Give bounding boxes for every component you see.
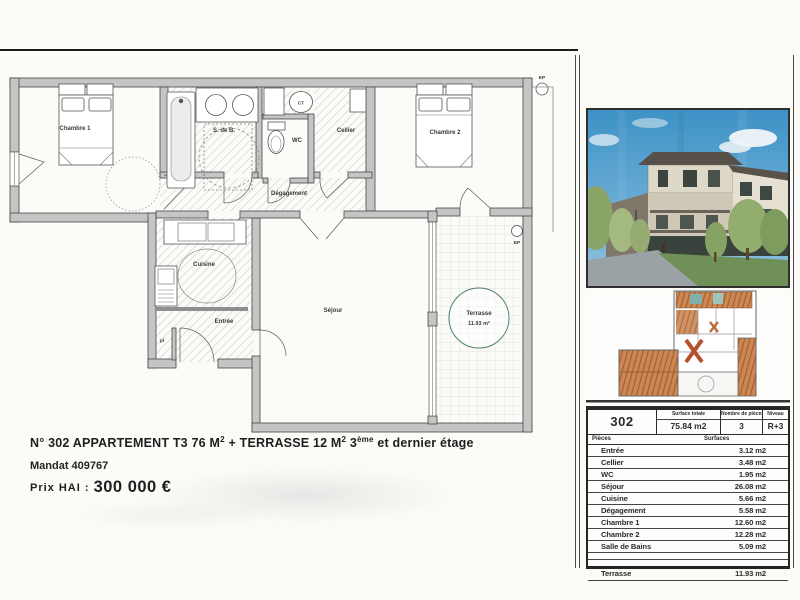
surface-totale-value: 75.84 m2: [657, 420, 720, 433]
room-label-sdb: S. de B.: [213, 128, 235, 134]
niveau-label: Niveau: [763, 410, 788, 420]
toilet: [268, 131, 284, 154]
room-label-wc: WC: [292, 138, 303, 144]
building-render-art: [588, 110, 788, 286]
appliance: [155, 266, 177, 306]
surface-totale-label: Surface totale: [657, 410, 720, 420]
toilet-tank: [268, 122, 285, 130]
ep-label: EP: [539, 75, 546, 81]
price-label: Prix HAI :: [30, 482, 90, 494]
surface-table: 302 Surface totale 75.84 m2 Nombre de pi…: [586, 408, 790, 569]
table-row-entree: Entrée3.12 m2: [588, 445, 788, 457]
room-label-chambre-2: Chambre 2: [429, 130, 461, 136]
thumbnail-bottom-rule: [586, 400, 790, 403]
table-row-sejour: Séjour26.08 m2: [588, 481, 788, 493]
label-placard: pl: [160, 338, 164, 344]
table-row-degagement: Dégagement5.58 m2: [588, 505, 788, 517]
table-row-salle-de-bains: Salle de Bains5.09 m2: [588, 541, 788, 553]
sink: [233, 95, 254, 116]
room-label-entree: Entrée: [215, 319, 234, 325]
table-row-empty: [588, 553, 788, 560]
floor-plan: Chambre 1 S. de B. WC CT Cellier Chambre…: [0, 55, 556, 445]
ep-drain: [512, 226, 523, 237]
scanned-listing-page: { "plan": { "rooms": { "chambre1": "Cham…: [0, 0, 800, 600]
sink: [206, 95, 227, 116]
center-terrace: [678, 372, 738, 396]
building-render-photo: [586, 108, 790, 288]
col-surfaces: Surfaces: [704, 435, 729, 444]
table-row-cellier: Cellier3.48 m2: [588, 457, 788, 469]
panel-divider-line: [575, 55, 576, 568]
table-row-chambre-2: Chambre 212.28 m2: [588, 529, 788, 541]
floor-thumbnail-art: [586, 290, 790, 405]
panel-divider-line: [579, 55, 580, 568]
label-ct: CT: [298, 101, 304, 107]
left-deck: [619, 350, 678, 396]
table-row-terrasse: Terrasse11.93 m2: [588, 566, 788, 581]
room-label-cellier: Cellier: [337, 128, 356, 134]
unit-number: 302: [588, 410, 656, 434]
table-row-cuisine: Cuisine5.66 m2: [588, 493, 788, 505]
table-row-wc: WC1.95 m2: [588, 469, 788, 481]
table-row-chambre-1: Chambre 112.60 m2: [588, 517, 788, 529]
room-label-sejour: Séjour: [324, 308, 343, 314]
pieces-value: 3: [721, 420, 762, 433]
page-right-edge-line: [793, 55, 794, 568]
turning-circle: [106, 157, 160, 211]
listing-title: N° 302 APPARTEMENT T3 76 M2 + TERRASSE 1…: [30, 435, 474, 450]
cloud: [589, 134, 619, 146]
roof-edge-line: [532, 87, 553, 232]
col-pieces: Pièces: [592, 435, 611, 444]
room-label-cuisine: Cuisine: [193, 262, 215, 268]
ep-label: EP: [514, 240, 521, 246]
mandat-number: Mandat 409767: [30, 460, 108, 472]
right-deck: [738, 338, 756, 396]
scan-smudge: [70, 500, 270, 530]
kitchen-counter: [164, 220, 246, 244]
pieces-label: Nombre de pièces: [721, 410, 762, 420]
duct: [264, 88, 284, 115]
cellier-shelf: [350, 89, 366, 112]
room-label-degagement: Dégagement: [271, 191, 307, 197]
page-top-rule: [0, 49, 578, 51]
floor-plan-thumbnail: [586, 290, 790, 408]
niveau-value: R+3: [763, 420, 788, 433]
terrasse-circle: [449, 288, 509, 348]
ep-drain: [536, 83, 548, 95]
room-label-chambre-1: Chambre 1: [59, 126, 91, 132]
surface-table-header: 302 Surface totale 75.84 m2 Nombre de pi…: [588, 410, 788, 435]
surface-table-subheader: Pièces Surfaces: [588, 435, 788, 445]
terrasse-area-label: 11.93 m²: [468, 320, 490, 327]
person: [662, 244, 665, 253]
room-label-terrasse: Terrasse: [466, 310, 492, 317]
